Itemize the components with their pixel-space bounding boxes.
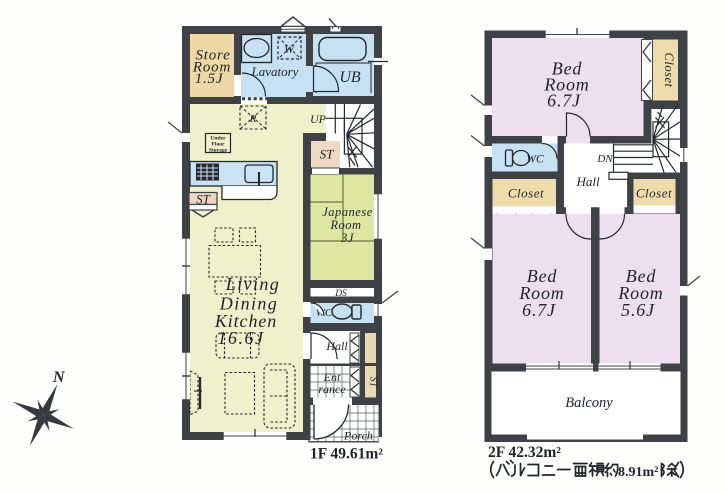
svg-text:8.91m²: 8.91m² bbox=[618, 465, 658, 480]
svg-text:DN: DN bbox=[596, 153, 613, 165]
svg-text:Closet: Closet bbox=[508, 186, 544, 201]
svg-text:Hall: Hall bbox=[575, 174, 600, 189]
svg-text:R: R bbox=[249, 113, 257, 125]
svg-text:DS: DS bbox=[334, 289, 347, 299]
svg-text:Closet: Closet bbox=[662, 53, 676, 88]
svg-text:5.6J: 5.6J bbox=[621, 300, 655, 320]
svg-text:1F 49.61m²: 1F 49.61m² bbox=[310, 446, 383, 463]
svg-text:3J: 3J bbox=[340, 231, 355, 245]
svg-text:UP: UP bbox=[310, 112, 327, 126]
svg-text:Closet: Closet bbox=[636, 186, 672, 201]
svg-text:Living: Living bbox=[225, 274, 280, 294]
svg-text:Balcony: Balcony bbox=[565, 395, 613, 411]
svg-text:2F 42.32m²: 2F 42.32m² bbox=[488, 444, 561, 461]
svg-text:UB: UB bbox=[339, 69, 361, 86]
svg-text:W: W bbox=[284, 42, 295, 56]
svg-text:Storage: Storage bbox=[209, 148, 228, 154]
svg-text:WC: WC bbox=[526, 154, 544, 166]
svg-text:ST: ST bbox=[368, 377, 379, 389]
svg-text:Porch: Porch bbox=[343, 429, 373, 443]
svg-text:ST: ST bbox=[320, 147, 335, 162]
svg-text:Lavatory: Lavatory bbox=[251, 64, 299, 79]
svg-text:Room: Room bbox=[329, 218, 361, 232]
svg-text:ST: ST bbox=[196, 192, 211, 207]
svg-text:6.7J: 6.7J bbox=[522, 300, 556, 320]
svg-text:6.7J: 6.7J bbox=[547, 91, 581, 111]
svg-text:N: N bbox=[52, 369, 66, 386]
svg-text:Japanese: Japanese bbox=[322, 205, 373, 219]
svg-text:1.5J: 1.5J bbox=[195, 71, 224, 87]
svg-text:rance: rance bbox=[318, 382, 346, 396]
